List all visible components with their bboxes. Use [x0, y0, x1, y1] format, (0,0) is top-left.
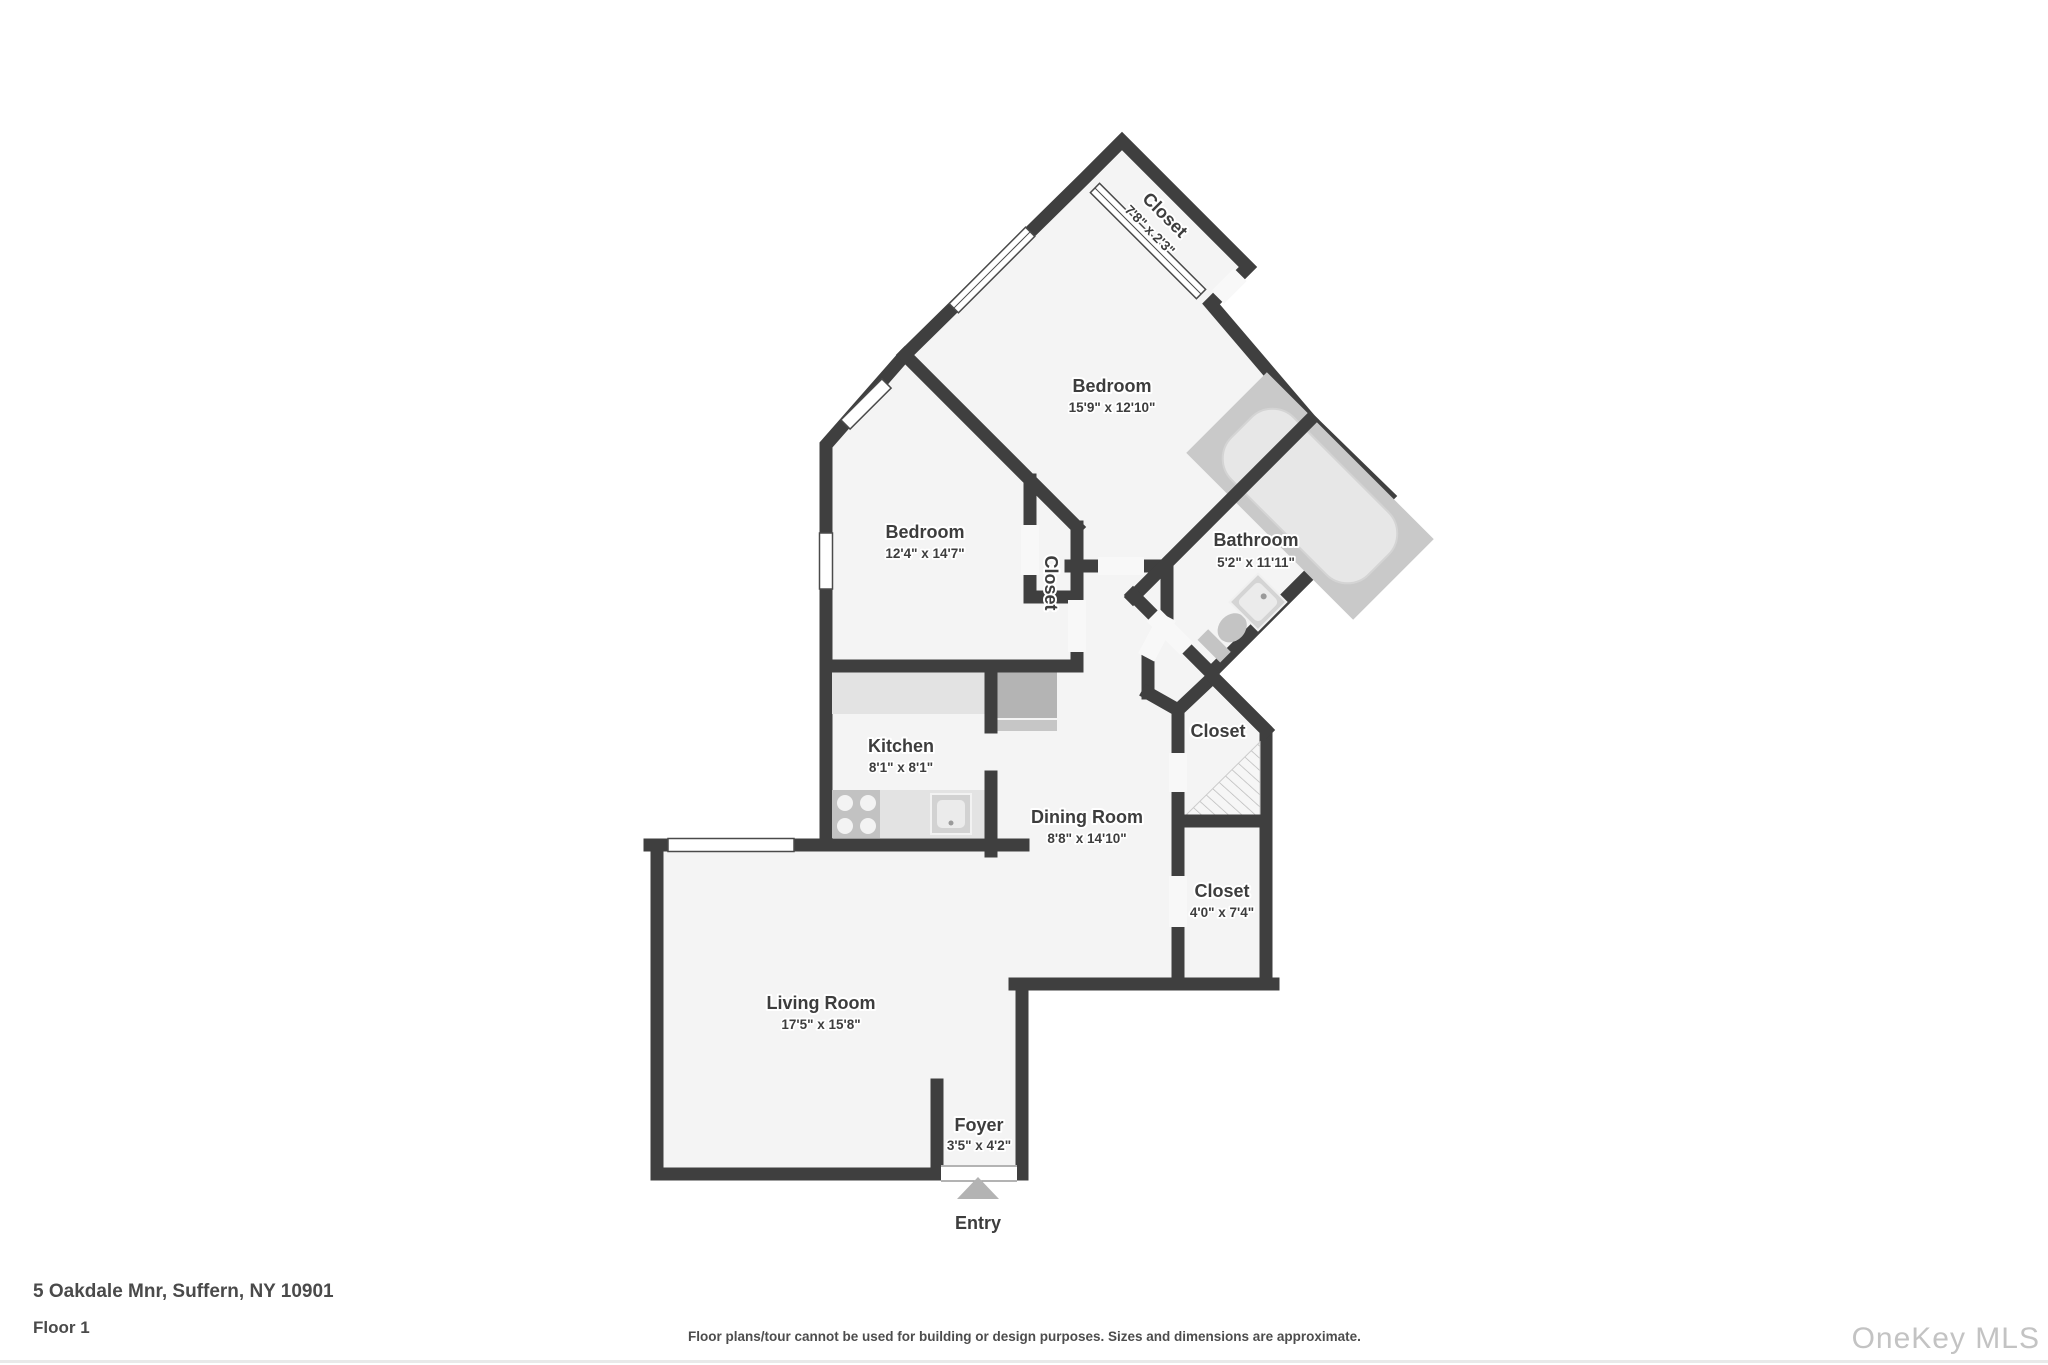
- svg-text:Bedroom: Bedroom: [885, 522, 964, 542]
- svg-text:Closet: Closet: [1041, 555, 1061, 610]
- address-text: 5 Oakdale Mnr, Suffern, NY 10901: [33, 1281, 334, 1303]
- room-label-kitchen: Kitchen 8'1" x 8'1": [868, 736, 934, 775]
- floorplan-canvas: Bedroom 15'9" x 12'10" Bedroom 12'4" x 1…: [0, 0, 2048, 1365]
- watermark-text: OneKey MLS: [1852, 1322, 2040, 1356]
- svg-text:8'8" x 14'10": 8'8" x 14'10": [1047, 831, 1126, 846]
- svg-text:3'5" x 4'2": 3'5" x 4'2": [947, 1138, 1011, 1153]
- svg-text:4'0" x 7'4": 4'0" x 7'4": [1190, 905, 1254, 920]
- svg-text:8'1" x 8'1": 8'1" x 8'1": [869, 760, 933, 775]
- svg-text:Closet: Closet: [1194, 881, 1249, 901]
- svg-text:12'4" x 14'7": 12'4" x 14'7": [885, 546, 964, 561]
- room-label-dining: Dining Room 8'8" x 14'10": [1031, 807, 1143, 846]
- bottom-divider: [0, 1360, 2048, 1363]
- svg-text:Living Room: Living Room: [767, 993, 876, 1013]
- svg-text:Bathroom: Bathroom: [1214, 530, 1299, 550]
- bedroom2-window: [820, 533, 833, 589]
- svg-text:Dining Room: Dining Room: [1031, 807, 1143, 827]
- refrigerator: [997, 672, 1057, 731]
- floorplan-page: { "address": "5 Oakdale Mnr, Suffern, NY…: [0, 0, 2048, 1365]
- room-label-bedroom2: Bedroom 12'4" x 14'7": [885, 522, 964, 561]
- entry-label: Entry: [955, 1213, 1001, 1233]
- room-label-foyer: Foyer 3'5" x 4'2": [947, 1115, 1011, 1153]
- room-label-closet-lower: Closet 4'0" x 7'4": [1190, 881, 1254, 920]
- kitchen-sink: [931, 794, 971, 834]
- svg-text:5'2" x 11'11": 5'2" x 11'11": [1217, 555, 1295, 570]
- svg-text:Foyer: Foyer: [954, 1115, 1003, 1135]
- svg-text:Entry: Entry: [955, 1213, 1001, 1233]
- room-label-closet-side: Closet: [1041, 555, 1061, 610]
- svg-text:17'5" x 15'8": 17'5" x 15'8": [781, 1017, 860, 1032]
- svg-text:Kitchen: Kitchen: [868, 736, 934, 756]
- stove: [832, 790, 880, 838]
- room-label-bedroom1: Bedroom 15'9" x 12'10": [1069, 376, 1156, 415]
- kitchen-counter-top: [832, 672, 985, 714]
- room-label-closet-mid: Closet: [1190, 721, 1245, 741]
- disclaimer-text: Floor plans/tour cannot be used for buil…: [688, 1329, 1361, 1344]
- floor-label: Floor 1: [33, 1318, 90, 1338]
- svg-text:15'9" x 12'10": 15'9" x 12'10": [1069, 400, 1156, 415]
- svg-text:Closet: Closet: [1190, 721, 1245, 741]
- room-label-living: Living Room 17'5" x 15'8": [767, 993, 876, 1032]
- svg-text:Bedroom: Bedroom: [1072, 376, 1151, 396]
- apartment-floor: [657, 141, 1388, 1174]
- living-window: [668, 839, 794, 852]
